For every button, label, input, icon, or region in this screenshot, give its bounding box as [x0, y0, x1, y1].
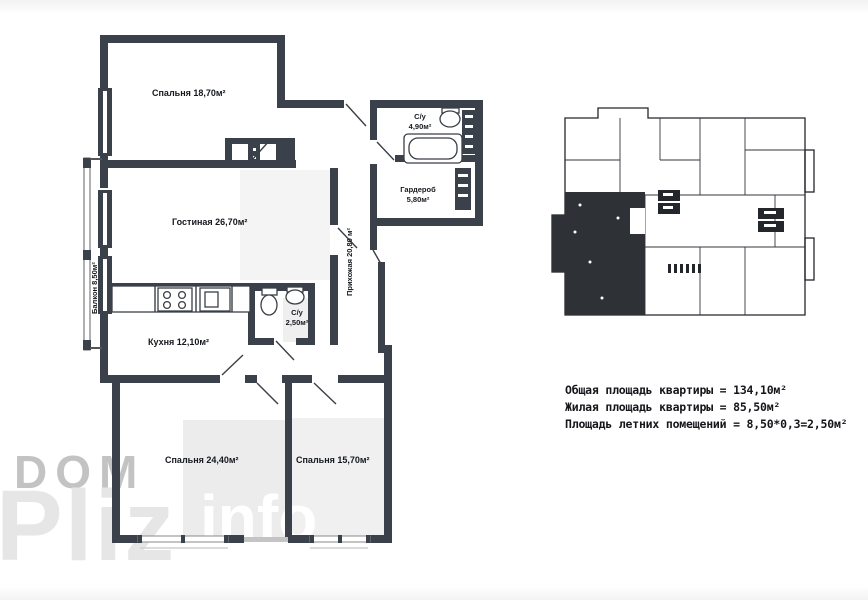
label-bedroom-left: Спальня 24,40м²	[165, 455, 239, 465]
building-key-plan	[552, 108, 814, 315]
towel-rack	[462, 110, 476, 154]
bathroom-sink	[440, 108, 460, 127]
stair-ticks	[668, 264, 701, 273]
label-hallway: Прихожая 20,80 м²	[345, 228, 354, 296]
bathtub	[404, 134, 462, 163]
label-bath-small-name: С/у	[291, 308, 304, 317]
label-bath-main-area: 4,90м²	[409, 122, 432, 131]
summary-total-area: Общая площадь квартиры = 134,10м²	[565, 383, 787, 397]
label-kitchen: Кухня 12,10м²	[148, 337, 209, 347]
label-bedroom-top: Спальня 18,70м²	[152, 88, 226, 98]
floor-plan-canvas: DOM Pliz info	[0, 0, 868, 600]
summary-summer-area: Площадь летних помещений = 8,50*0,3=2,50…	[565, 417, 847, 431]
watermark-pliz: Pliz	[0, 470, 176, 582]
scanned-floor-plan-page: { "watermark": { "dom": "DOM", "pliz": "…	[0, 0, 868, 600]
label-bath-small-area: 2,50м²	[286, 318, 309, 327]
label-wardrobe-name: Гардероб	[400, 185, 436, 194]
kitchen-sink-icon	[200, 288, 230, 311]
toilet-icon	[261, 288, 277, 315]
label-balcony: Балкон 8,50м²	[90, 262, 99, 314]
label-bath-main-name: С/у	[414, 112, 427, 121]
label-bedroom-right: Спальня 15,70м²	[296, 455, 370, 465]
summary-living-area: Жилая площадь квартиры = 85,50м²	[565, 400, 780, 414]
wardrobe-shelves	[455, 168, 471, 210]
label-living: Гостиная 26,70м²	[172, 217, 247, 227]
wc-sink-icon	[286, 287, 304, 304]
watermark-info: info	[200, 482, 317, 554]
label-wardrobe-area: 5,80м²	[407, 195, 430, 204]
area-summary: Общая площадь квартиры = 134,10м² Жилая …	[565, 383, 847, 431]
stove-icon	[158, 288, 192, 311]
